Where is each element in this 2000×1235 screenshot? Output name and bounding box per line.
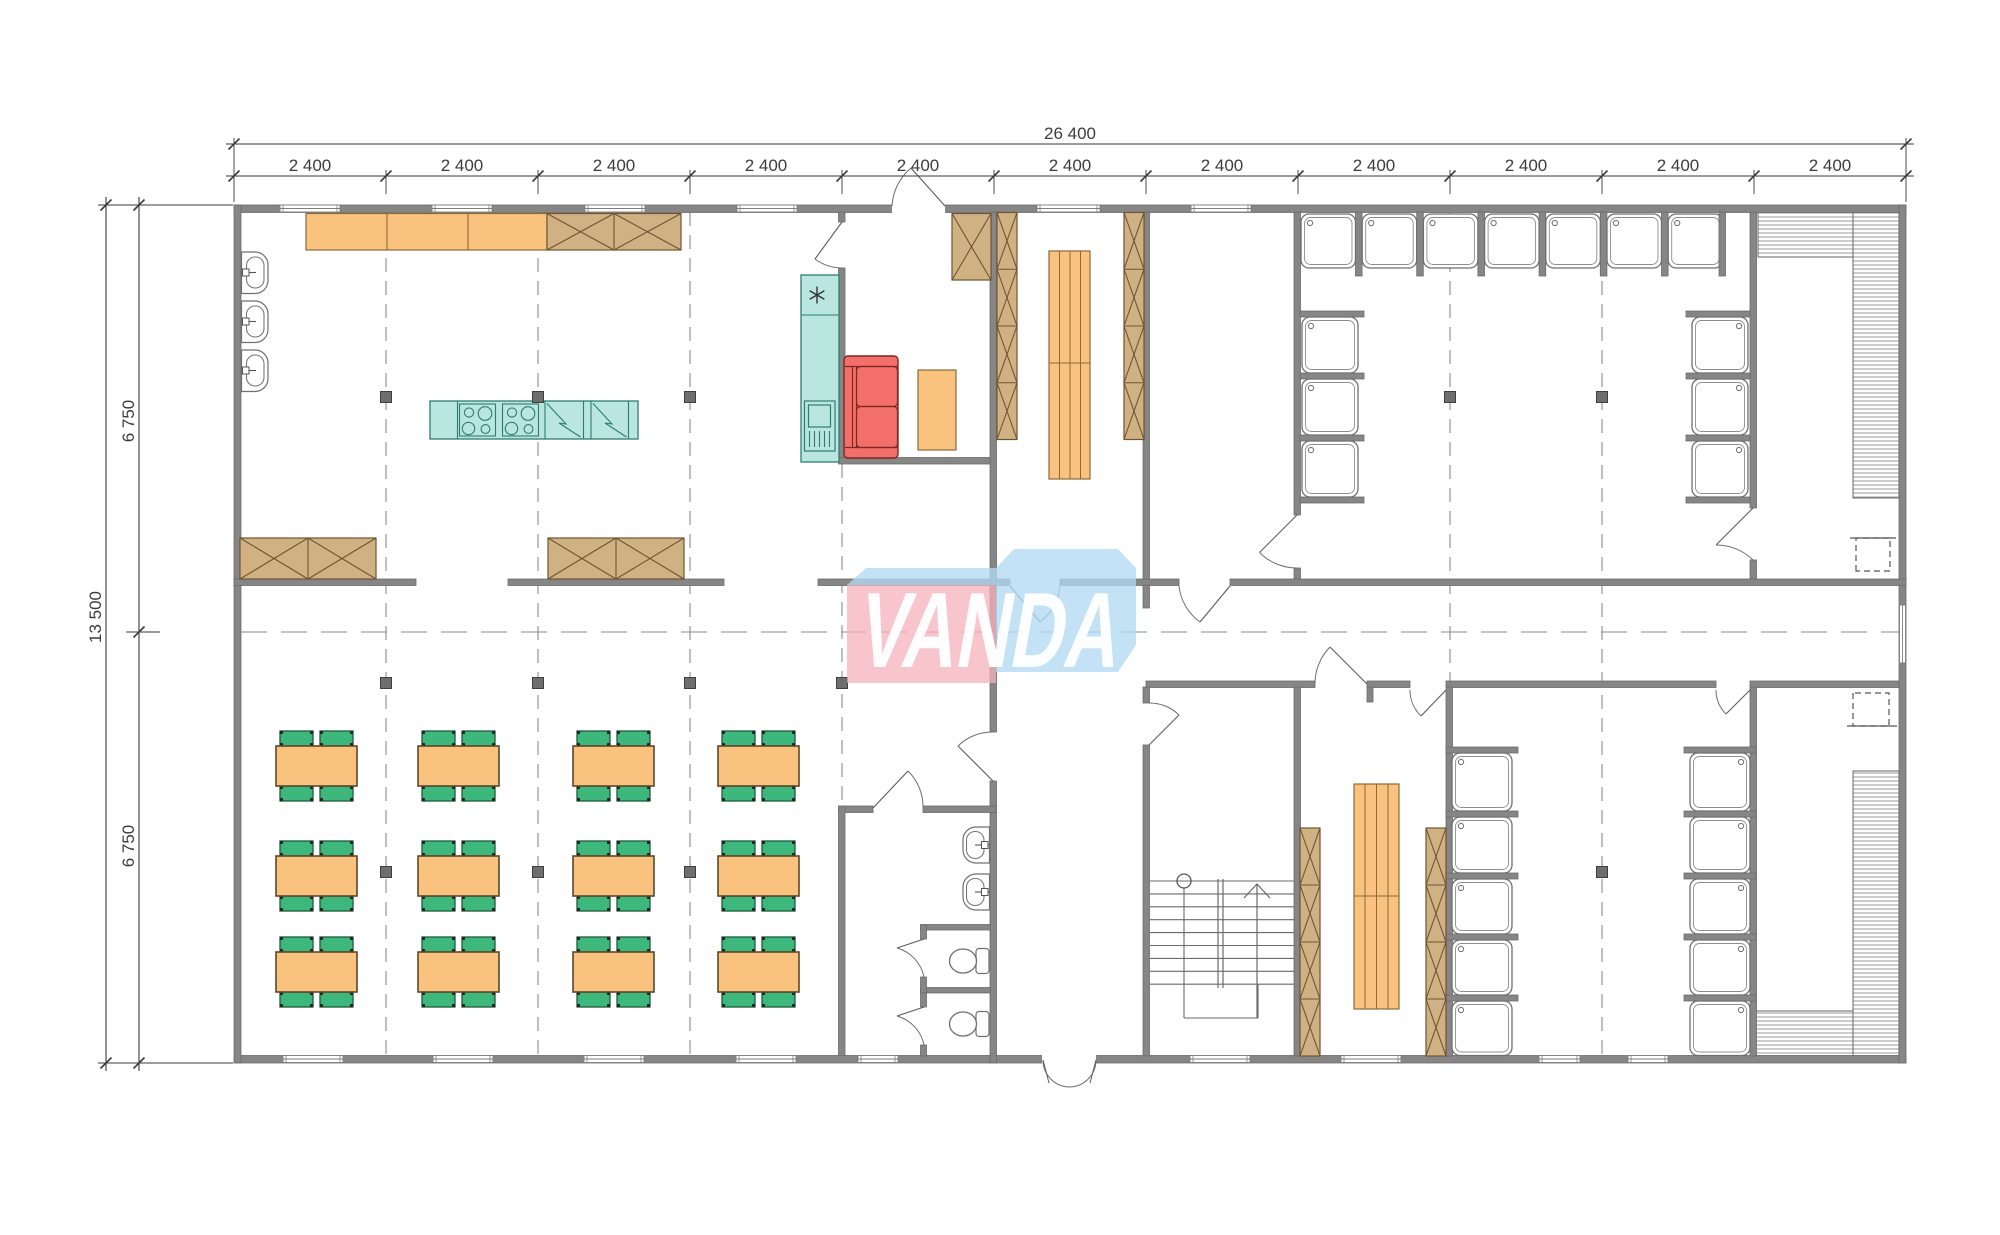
svg-text:2 400: 2 400 xyxy=(897,156,940,175)
svg-text:26 400: 26 400 xyxy=(1044,124,1096,143)
svg-text:2 400: 2 400 xyxy=(1353,156,1396,175)
svg-text:VANDA: VANDA xyxy=(851,571,1133,690)
svg-text:6 750: 6 750 xyxy=(119,400,138,443)
svg-text:2 400: 2 400 xyxy=(289,156,332,175)
svg-text:2 400: 2 400 xyxy=(1049,156,1092,175)
svg-text:2 400: 2 400 xyxy=(1809,156,1852,175)
svg-text:2 400: 2 400 xyxy=(745,156,788,175)
svg-text:6 750: 6 750 xyxy=(119,825,138,868)
svg-text:2 400: 2 400 xyxy=(441,156,484,175)
svg-text:2 400: 2 400 xyxy=(1505,156,1548,175)
svg-text:2 400: 2 400 xyxy=(1201,156,1244,175)
svg-text:2 400: 2 400 xyxy=(1657,156,1700,175)
svg-text:13 500: 13 500 xyxy=(86,591,105,643)
svg-text:2 400: 2 400 xyxy=(593,156,636,175)
